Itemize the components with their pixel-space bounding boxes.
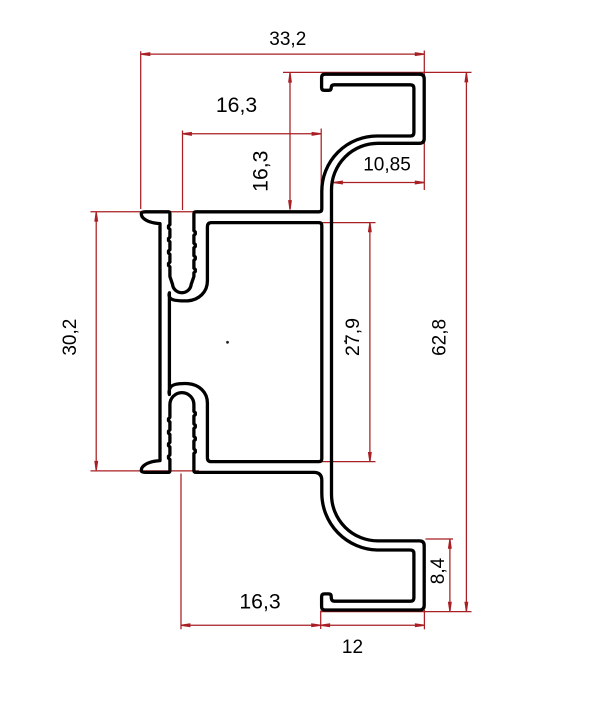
svg-text:16,3: 16,3 [250,151,273,192]
svg-text:16,3: 16,3 [239,591,280,614]
svg-text:8,4: 8,4 [428,557,449,584]
svg-text:27,9: 27,9 [342,318,364,356]
svg-text:33,2: 33,2 [269,29,306,50]
svg-text:30,2: 30,2 [60,319,81,356]
svg-text:12: 12 [342,637,363,658]
svg-text:62,8: 62,8 [429,319,450,356]
svg-text:10,85: 10,85 [363,155,411,176]
svg-text:16,3: 16,3 [216,94,257,117]
